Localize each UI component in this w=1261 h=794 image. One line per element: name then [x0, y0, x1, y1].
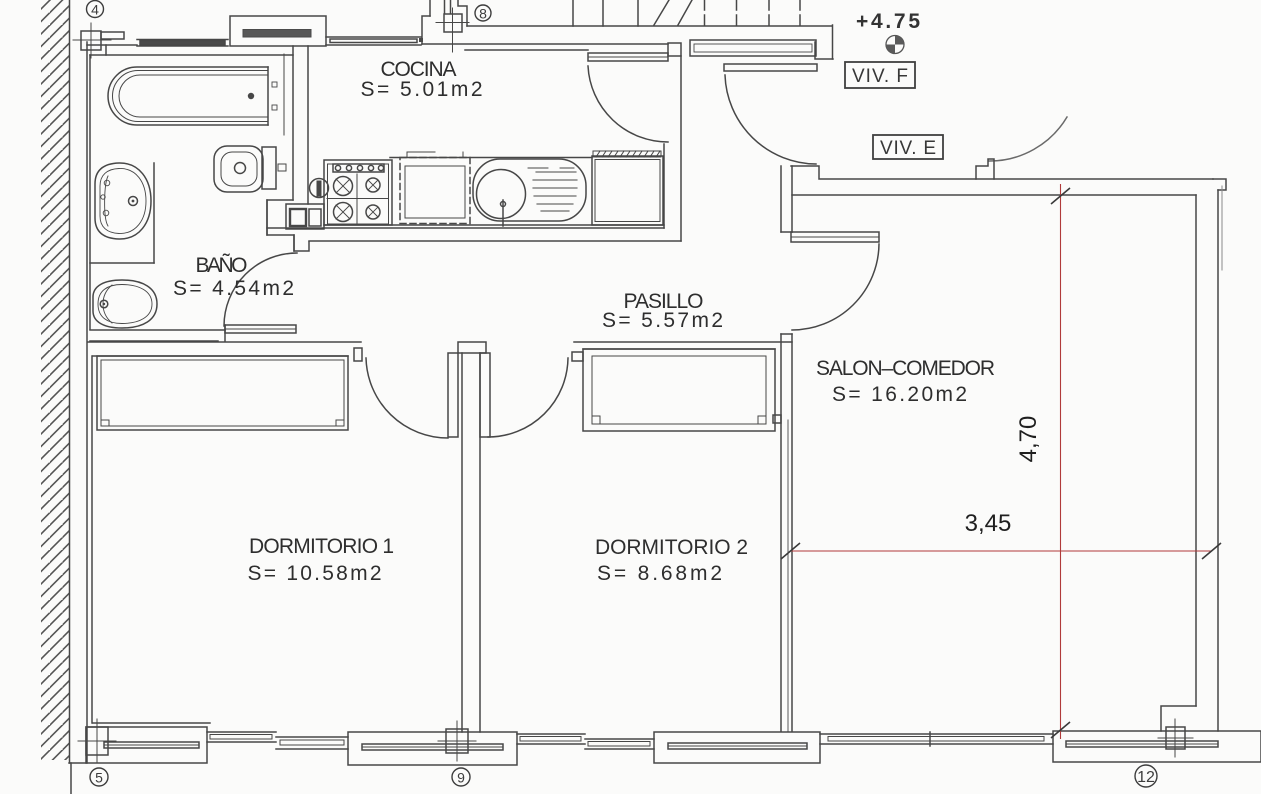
svg-text:SALON–COMEDOR: SALON–COMEDOR: [816, 357, 996, 380]
svg-text:S= 8.68m2: S= 8.68m2: [597, 562, 723, 585]
svg-text:S= 5.01m2: S= 5.01m2: [361, 78, 484, 101]
svg-text:VIV. E: VIV. E: [880, 138, 936, 159]
svg-text:8: 8: [479, 6, 487, 22]
svg-text:4,70: 4,70: [1015, 416, 1042, 463]
svg-text:VIV. F: VIV. F: [852, 66, 908, 87]
svg-text:9: 9: [457, 770, 465, 786]
svg-text:BAÑO: BAÑO: [196, 253, 249, 277]
svg-text:+4.75: +4.75: [856, 10, 920, 33]
svg-text:5: 5: [95, 770, 103, 786]
svg-text:12: 12: [1137, 769, 1155, 786]
svg-text:DORMITORIO 1: DORMITORIO 1: [249, 535, 395, 558]
svg-text:S= 10.58m2: S= 10.58m2: [248, 562, 383, 585]
svg-text:S= 5.57m2: S= 5.57m2: [602, 309, 724, 332]
svg-text:DORMITORIO 2: DORMITORIO 2: [595, 536, 749, 559]
svg-text:S= 16.20m2: S= 16.20m2: [832, 383, 968, 406]
svg-text:4: 4: [91, 2, 99, 18]
svg-text:S= 4.54m2: S= 4.54m2: [173, 277, 295, 300]
svg-text:3,45: 3,45: [965, 510, 1012, 537]
